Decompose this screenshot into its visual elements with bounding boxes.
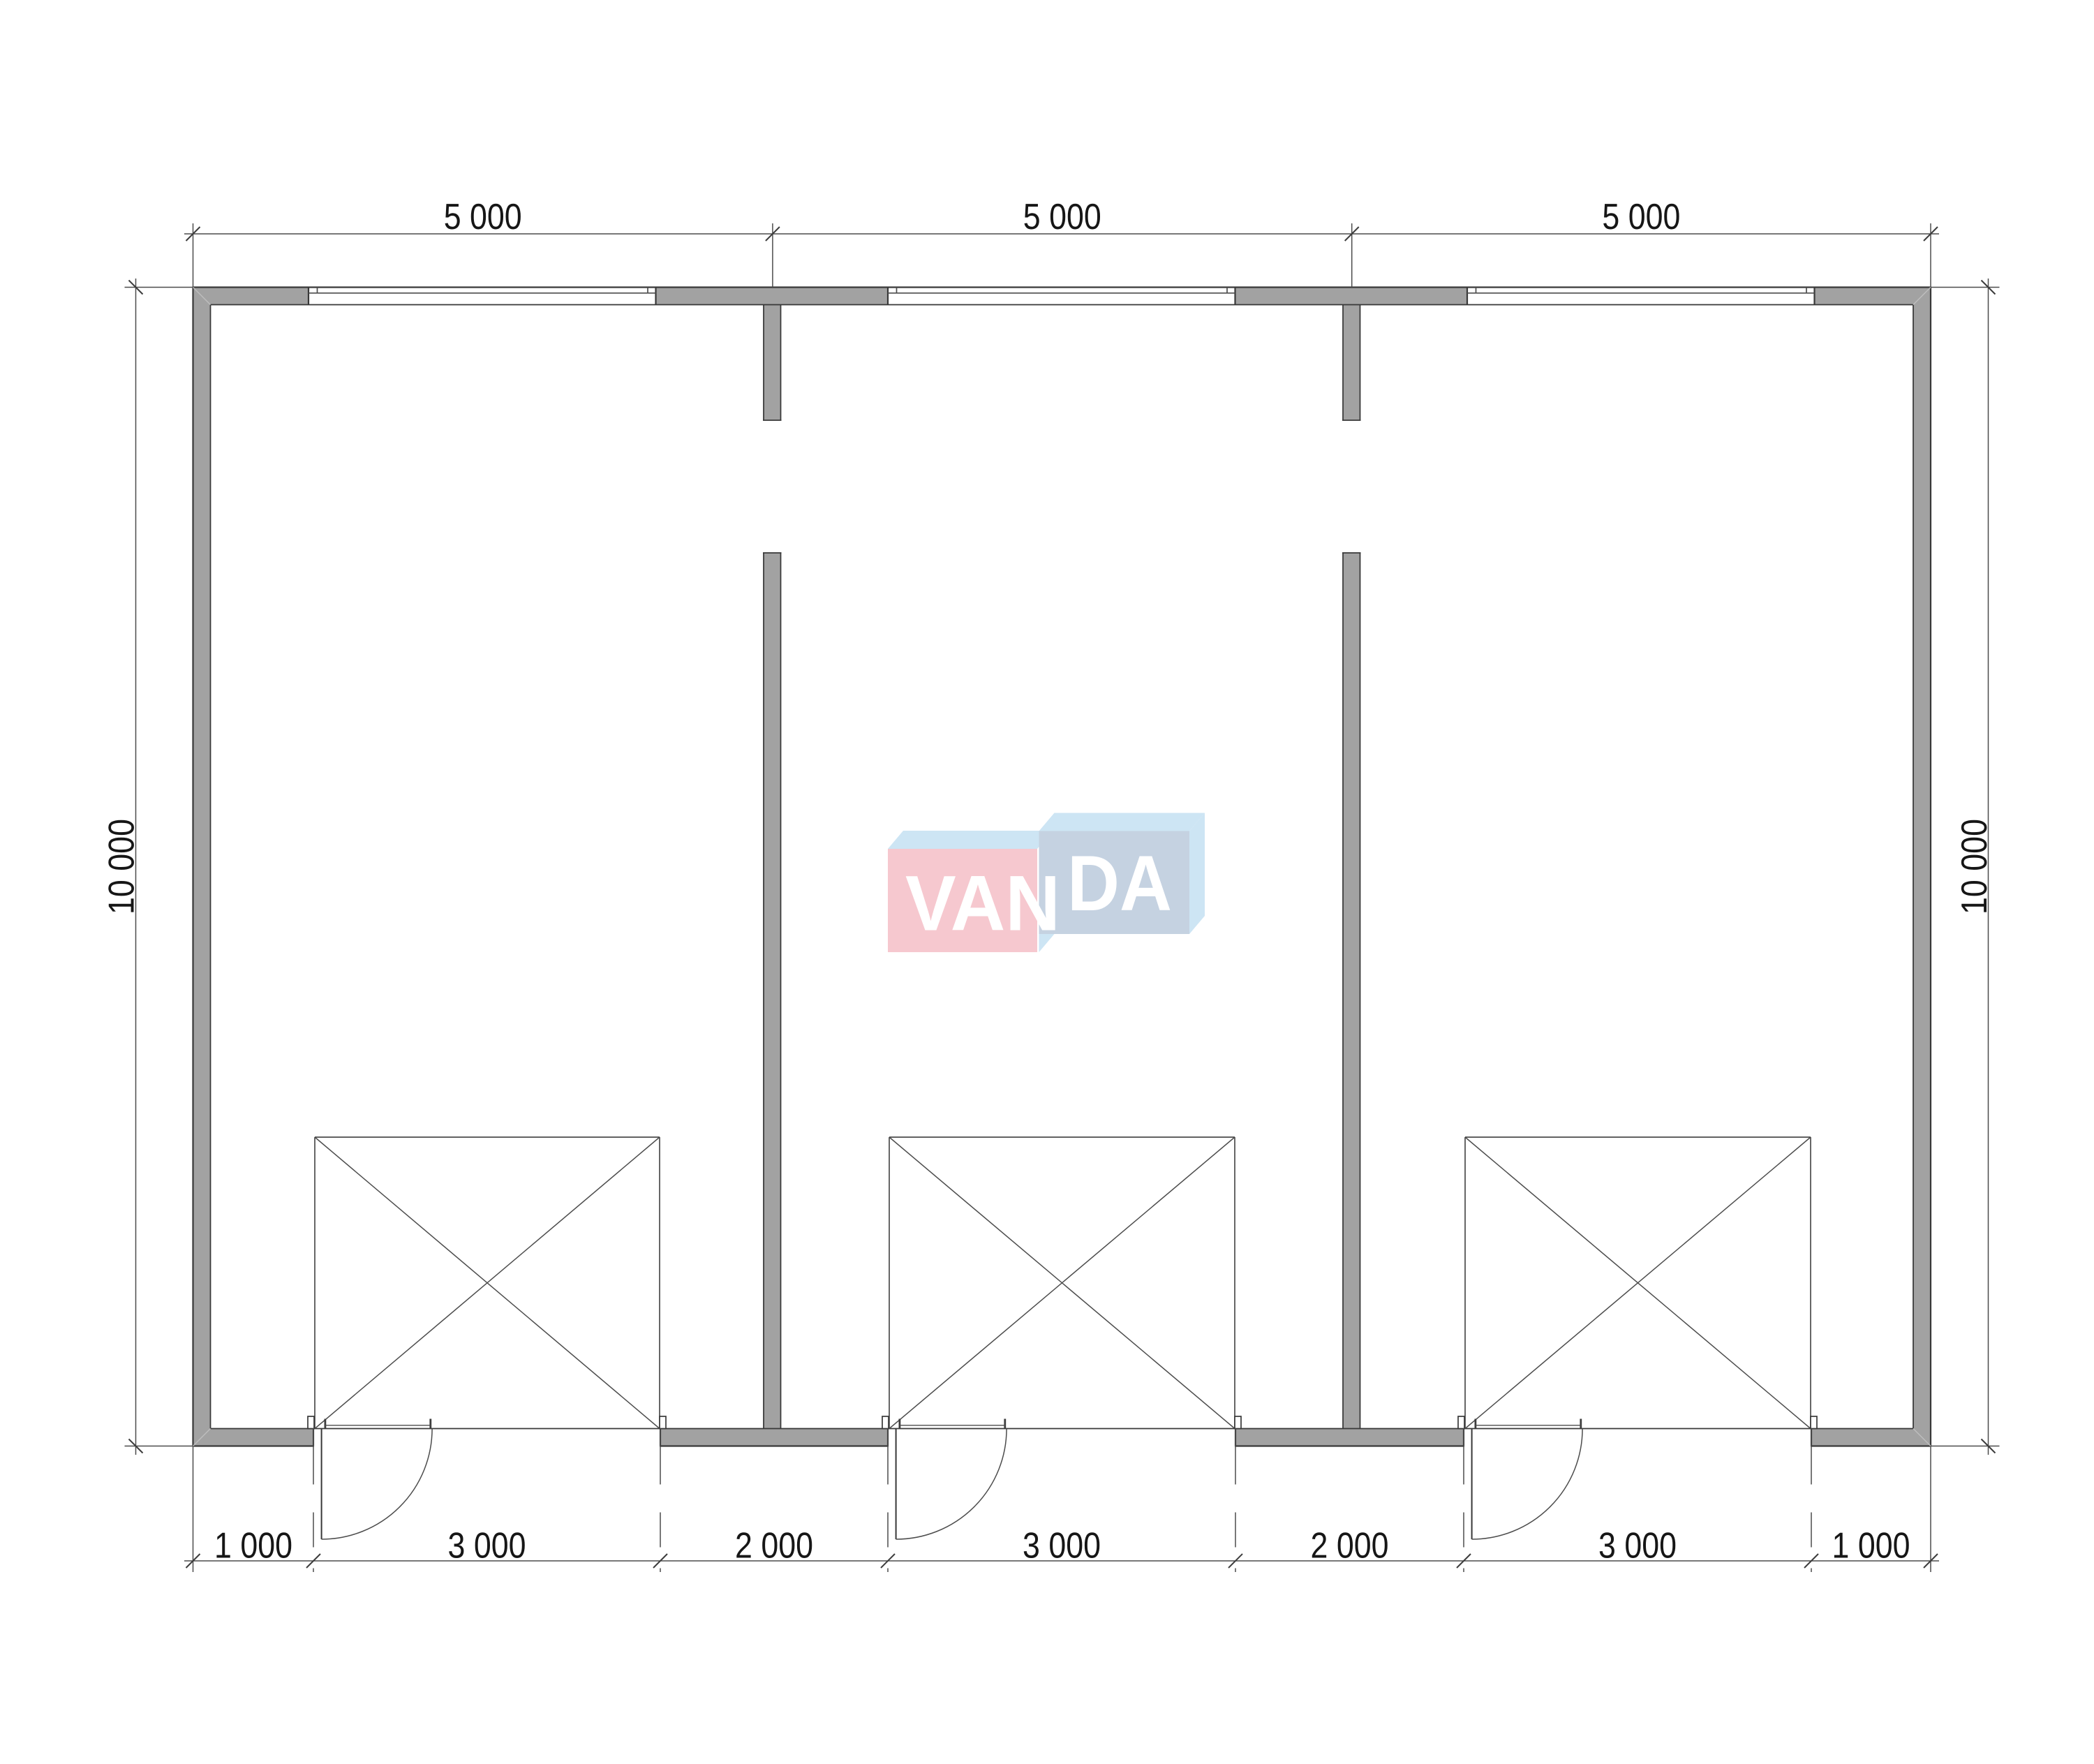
svg-text:2 000: 2 000 <box>735 1525 813 1566</box>
svg-text:5 000: 5 000 <box>1023 196 1101 237</box>
svg-text:VAN: VAN <box>905 860 1060 947</box>
svg-text:2 000: 2 000 <box>1311 1525 1389 1566</box>
svg-text:1 000: 1 000 <box>214 1525 292 1566</box>
svg-text:DA: DA <box>1067 840 1172 927</box>
svg-text:5 000: 5 000 <box>1602 196 1680 237</box>
svg-text:3 000: 3 000 <box>448 1525 526 1566</box>
svg-text:3 000: 3 000 <box>1023 1525 1101 1566</box>
svg-text:1 000: 1 000 <box>1832 1525 1910 1566</box>
svg-text:3 000: 3 000 <box>1598 1525 1677 1566</box>
svg-text:10 000: 10 000 <box>1954 819 1994 914</box>
svg-text:10 000: 10 000 <box>101 819 142 914</box>
svg-text:5 000: 5 000 <box>444 196 522 237</box>
